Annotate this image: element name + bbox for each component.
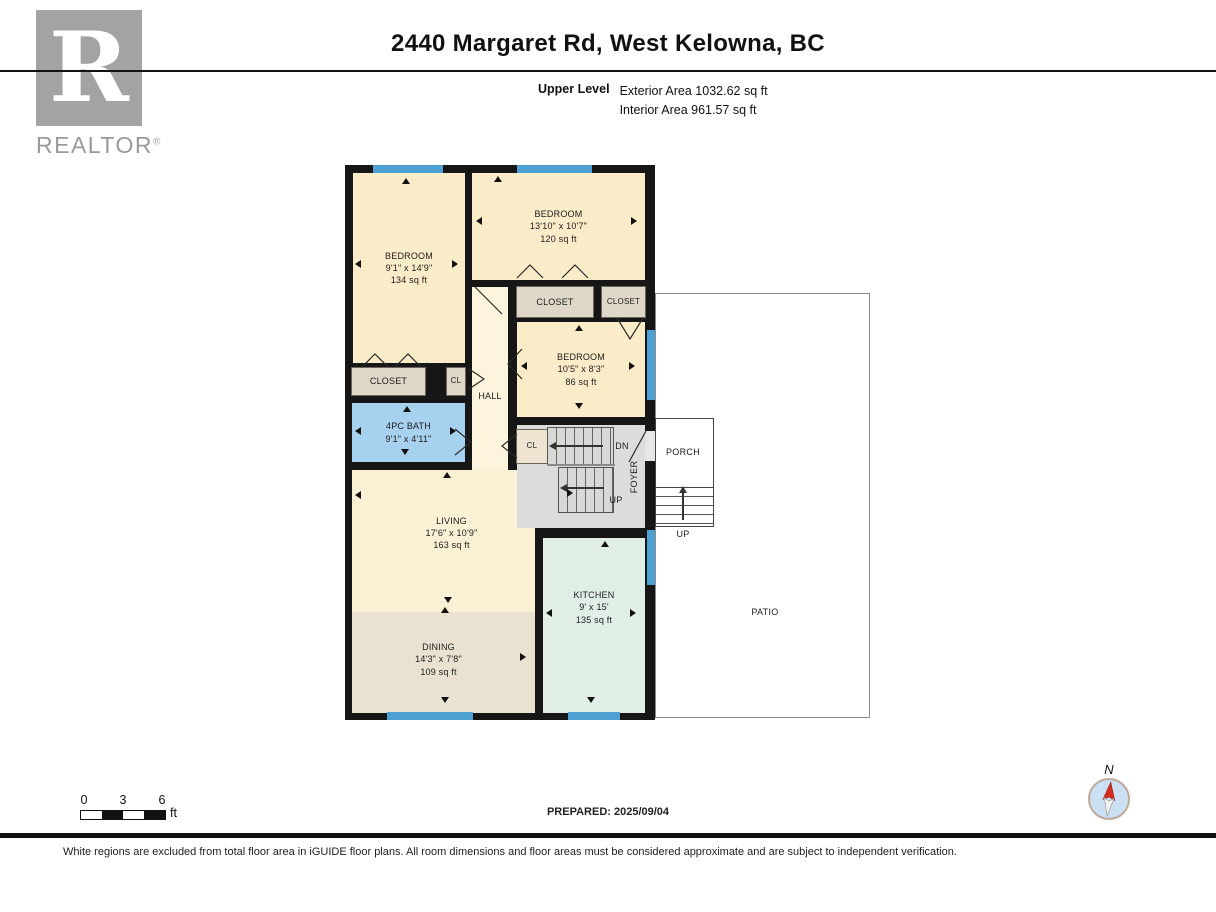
room-hall: HALL [472,287,508,470]
room-cl-foyer: CL [517,430,547,463]
dimension-arrow-icon [546,609,552,617]
scale-bar-ticks: 0 3 6 [74,793,174,807]
dimension-arrow-icon [443,472,451,478]
dimension-arrow-icon [452,260,458,268]
dimension-arrow-icon [476,217,482,225]
room-name: KITCHEN [574,589,615,601]
room-dims: 9' x 15' [574,601,615,613]
window [647,330,655,400]
closet-label: CLOSET [536,296,573,308]
room-dims: 10'5" x 8'3" [557,363,605,375]
porch-up-label: UP [676,529,689,539]
exterior-area: Exterior Area 1032.62 sq ft [620,82,768,101]
room-name: 4PC BATH [385,420,431,432]
dimension-arrow-icon [631,217,637,225]
dimension-arrow-icon [355,427,361,435]
room-area: 135 sq ft [574,614,615,626]
dimension-arrow-icon [403,406,411,412]
window [387,712,473,720]
stairs-divider [547,464,615,466]
dimension-arrow-icon [575,325,583,331]
room-area: 163 sq ft [426,539,478,551]
level-summary: Upper Level Exterior Area 1032.62 sq ft … [538,82,768,120]
dimension-arrow-icon [355,260,361,268]
dimension-arrow-icon [402,178,410,184]
room-name: BEDROOM [385,250,433,262]
dimension-arrow-icon [444,597,452,603]
foyer-door-opening [645,431,655,461]
room-name: DINING [415,641,462,653]
title-divider [0,70,1216,72]
dimension-arrow-icon [587,697,595,703]
porch-steps [655,487,714,527]
window [647,530,655,585]
stairs-down-flight [547,427,614,466]
window [373,165,443,173]
room-kitchen: KITCHEN 9' x 15' 135 sq ft [543,538,645,713]
room-closet-bedroom1: CLOSET [352,368,425,395]
dimension-arrow-icon [601,541,609,547]
room-living: LIVING 17'6" x 10'9" 163 sq ft [352,470,535,612]
compass: N [1086,762,1132,826]
dimension-arrow-icon [630,609,636,617]
closet-label: CLOSET [370,375,407,387]
room-dims: 9'1" x 4'11" [385,433,431,445]
dimension-arrow-icon [401,449,409,455]
compass-rose-icon [1087,777,1131,821]
room-name: BEDROOM [557,351,605,363]
room-closet-bedroom3: CLOSET [602,287,645,317]
dimension-arrow-icon [494,176,502,182]
cl-label: CL [451,376,462,387]
room-bedroom-2: BEDROOM 13'10" x 10'7" 120 sq ft [472,173,645,280]
room-dims: 9'1" x 14'9" [385,262,433,274]
realtor-logo-box: R [36,10,142,126]
compass-north-label: N [1086,762,1132,777]
steps-up-arrow-icon [682,492,684,520]
page-title: 2440 Margaret Rd, West Kelowna, BC [0,30,1216,58]
room-dims: 14'3" x 7'8" [415,653,462,665]
room-name: BEDROOM [530,208,587,220]
prepared-date: PREPARED: 2025/09/04 [0,806,1216,818]
room-area: 120 sq ft [530,233,587,245]
footer-divider-bar [0,833,1216,838]
area-lines: Exterior Area 1032.62 sq ft Interior Are… [620,82,768,120]
dimension-arrow-icon [575,403,583,409]
interior-area: Interior Area 961.57 sq ft [620,101,768,120]
dimension-arrow-icon [441,697,449,703]
room-area: 86 sq ft [557,376,605,388]
stairs-up-label: UP [609,495,622,505]
patio-label: PATIO [751,607,778,617]
scale-tick: 0 [81,793,88,807]
dimension-arrow-icon [521,362,527,370]
room-cl-bedroom1: CL [447,368,465,395]
registered-mark: ® [153,136,162,147]
disclaimer-text: White regions are excluded from total fl… [63,846,957,858]
closet-label: CLOSET [607,297,640,308]
dimension-arrow-icon [450,427,456,435]
foyer-label: FOYER [629,461,639,494]
level-label: Upper Level [538,82,610,120]
porch-label: PORCH [666,447,700,457]
floor-plan: PATIO PORCH UP BEDROOM 9'1" x 14'9" 134 … [345,165,875,725]
room-name: LIVING [426,515,478,527]
dimension-arrow-icon [567,489,573,497]
room-dims: 13'10" x 10'7" [530,220,587,232]
stairs-dn-arrow-icon [555,445,603,447]
dimension-arrow-icon [441,607,449,613]
dimension-arrow-icon [520,653,526,661]
room-closet-bedroom2: CLOSET [517,287,593,317]
window [568,712,620,720]
stairs-dn-label: DN [615,441,629,451]
dimension-arrow-icon [355,491,361,499]
hall-label: HALL [478,390,501,402]
realtor-wordmark: REALTOR® [36,132,176,159]
dimension-arrow-icon [629,362,635,370]
floor-plan-walls: BEDROOM 9'1" x 14'9" 134 sq ft BEDROOM 1… [345,165,655,720]
room-area: 134 sq ft [385,274,433,286]
scale-tick: 3 [120,793,127,807]
scale-tick: 6 [159,793,166,807]
cl-label: CL [527,441,538,452]
room-bedroom-1: BEDROOM 9'1" x 14'9" 134 sq ft [353,173,465,363]
room-area: 109 sq ft [415,666,462,678]
realtor-brand-text: REALTOR [36,132,153,158]
room-dims: 17'6" x 10'9" [426,527,478,539]
window [517,165,592,173]
